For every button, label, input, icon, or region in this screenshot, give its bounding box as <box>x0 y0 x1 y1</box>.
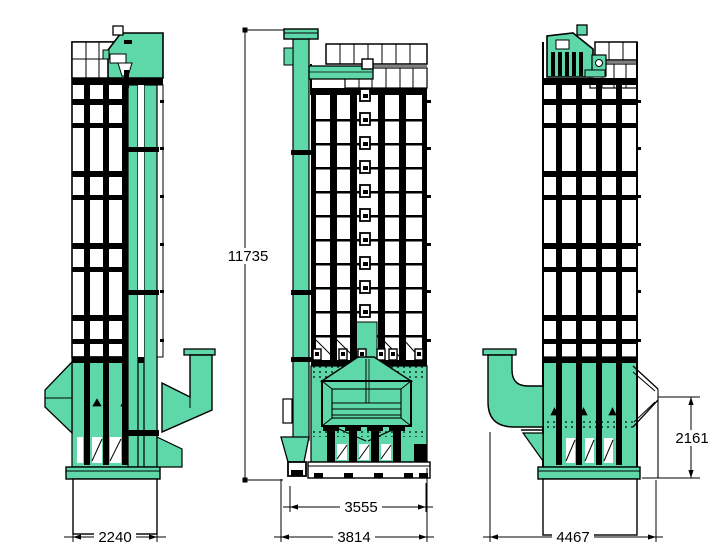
front-inner-width-label: 3555 <box>344 499 377 516</box>
dimension-front-overall-width: 3814 <box>333 529 375 546</box>
left-side-view <box>45 26 215 534</box>
right-side-view <box>483 25 658 535</box>
machine-linework <box>45 25 700 542</box>
dimension-left-view-width: 2240 <box>94 529 136 546</box>
front-overall-width-label: 3814 <box>337 529 370 546</box>
dimension-hopper-section-height: 2161 <box>671 430 711 447</box>
dimension-right-overall-width: 4467 <box>552 529 594 546</box>
front-view <box>281 29 431 478</box>
drawing-canvas: 11735 2240 3555 3814 4467 2161 <box>0 0 711 555</box>
right-overall-width-label: 4467 <box>556 529 589 546</box>
overall-height-label: 11735 <box>228 248 269 265</box>
dimension-overall-height: 11735 <box>226 248 269 265</box>
dimension-front-inner-width: 3555 <box>340 499 382 516</box>
grain-dryer-three-view-drawing: 11735 2240 3555 3814 4467 2161 <box>0 0 711 555</box>
left-view-width-label: 2240 <box>98 529 131 546</box>
hopper-section-height-label: 2161 <box>675 430 708 447</box>
